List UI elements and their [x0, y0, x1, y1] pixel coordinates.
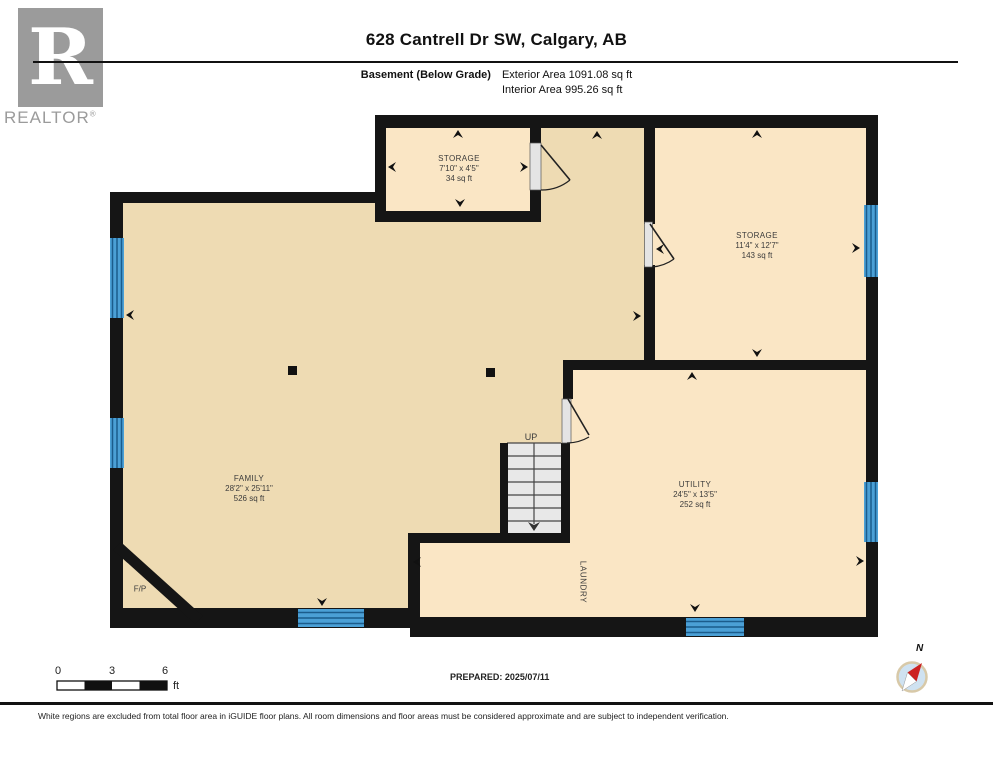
compass-icon [898, 663, 927, 692]
window-bottom-utility [686, 618, 744, 636]
room-label-laundry: LAUNDRY [579, 561, 588, 603]
disclaimer-text: White regions are excluded from total fl… [38, 711, 978, 721]
stairs-up-label: UP [525, 432, 538, 442]
registered-mark: ® [90, 109, 97, 118]
floor-summary: Basement (Below Grade) Exterior Area 109… [0, 69, 993, 99]
floor-label: Basement (Below Grade) [361, 69, 491, 99]
scale-tick-0: 0 [55, 665, 61, 677]
fireplace-label: F/P [134, 585, 146, 594]
window-right-utility [864, 482, 878, 542]
room-label-storage-right: STORAGE 11'4" x 12'7" 143 sq ft [735, 231, 778, 261]
scale-bar [57, 681, 167, 690]
window-right-storage [864, 205, 878, 277]
exterior-area: Exterior Area 1091.08 sq ft [502, 69, 632, 81]
floorplan-page: R REALTOR® 628 Cantrell Dr SW, Calgary, … [0, 0, 993, 768]
scale-tick-3: 3 [109, 665, 115, 677]
scale-tick-6: 6 [162, 665, 168, 677]
staircase [507, 443, 561, 533]
realtor-logo-word: REALTOR® [4, 108, 134, 128]
window-left-1 [110, 238, 124, 318]
scale-unit: ft [173, 680, 179, 692]
window-left-2 [110, 418, 124, 468]
prepared-date: PREPARED: 2025/07/11 [450, 672, 549, 682]
footer-divider [0, 702, 993, 705]
compass-north-label: N [916, 643, 923, 654]
room-label-utility: UTILITY 24'5" x 13'5" 252 sq ft [673, 480, 717, 510]
area-summary: Exterior Area 1091.08 sq ft Interior Are… [502, 69, 632, 99]
room-label-storage-top: STORAGE 7'10" x 4'5" 34 sq ft [438, 154, 480, 184]
room-label-family: FAMILY 28'2" x 25'11" 526 sq ft [225, 474, 273, 504]
window-bottom-family [298, 609, 364, 627]
header-divider [33, 61, 958, 63]
floor-plan-drawing [0, 0, 993, 768]
page-title: 628 Cantrell Dr SW, Calgary, AB [0, 30, 993, 50]
interior-area: Interior Area 995.26 sq ft [502, 84, 632, 96]
